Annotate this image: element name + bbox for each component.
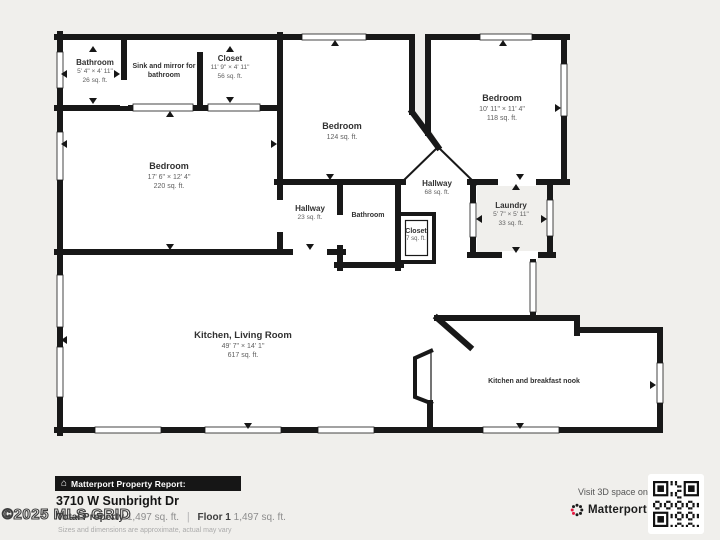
floor-value: 1,497 sq. ft. bbox=[234, 512, 286, 523]
disclaimer-text: Sizes and dimensions are approximate, ac… bbox=[58, 527, 232, 534]
room-label-bedroom-middle: Bedroom 124 sq. ft. bbox=[287, 121, 397, 142]
room-dims: 11' 9" × 4' 11" bbox=[192, 64, 268, 72]
qr-code-pattern bbox=[653, 480, 699, 528]
totals-separator: | bbox=[187, 511, 190, 523]
room-name: Closet bbox=[394, 227, 438, 236]
room-area: 7 sq. ft. bbox=[394, 236, 438, 244]
room-label-kitchen-living: Kitchen, Living Room 49' 7" × 14' 1" 617… bbox=[158, 330, 328, 361]
room-dims: 10' 11" × 11' 4" bbox=[447, 105, 557, 114]
matterport-brand: Matterport ™ bbox=[570, 503, 656, 517]
room-name: Bedroom bbox=[109, 161, 229, 173]
room-area: 68 sq. ft. bbox=[397, 189, 477, 197]
room-area: 56 sq. ft. bbox=[192, 73, 268, 81]
total-property-value: 1,497 sq. ft. bbox=[127, 512, 179, 523]
visit-3d-text: Visit 3D space on bbox=[578, 487, 648, 497]
room-dims: 17' 6" × 12' 4" bbox=[109, 173, 229, 182]
room-area: 124 sq. ft. bbox=[287, 133, 397, 142]
room-name: Closet bbox=[192, 54, 268, 64]
matterport-report-bar: ⌂ Matterport Property Report: bbox=[55, 476, 241, 491]
room-name: Hallway bbox=[397, 179, 477, 189]
room-area: 220 sq. ft. bbox=[109, 182, 229, 191]
room-label-kitchen-nook: Kitchen and breakfast nook bbox=[439, 377, 629, 386]
floorplan-page: Bathroom 5' 4" × 4' 11" 26 sq. ft. Sink … bbox=[0, 0, 720, 540]
room-name: Laundry bbox=[466, 201, 556, 211]
mls-grid-watermark: ©2025 MLS GRID bbox=[2, 506, 131, 523]
room-area: 33 sq. ft. bbox=[466, 220, 556, 228]
room-label-closet-top: Closet 11' 9" × 4' 11" 56 sq. ft. bbox=[192, 54, 268, 81]
room-label-laundry: Laundry 5' 7" × 5' 11" 33 sq. ft. bbox=[466, 201, 556, 228]
qr-code bbox=[648, 474, 704, 534]
floor-label: Floor 1 bbox=[198, 512, 231, 523]
room-label-bedroom-right: Bedroom 10' 11" × 11' 4" 118 sq. ft. bbox=[447, 93, 557, 123]
room-area: 617 sq. ft. bbox=[158, 351, 328, 360]
room-label-bedroom-left: Bedroom 17' 6" × 12' 4" 220 sq. ft. bbox=[109, 161, 229, 191]
room-label-closet-small: Closet 7 sq. ft. bbox=[394, 227, 438, 244]
house-icon: ⌂ bbox=[61, 479, 67, 489]
matterport-wordmark: Matterport bbox=[588, 504, 647, 516]
room-dims: 49' 7" × 14' 1" bbox=[158, 342, 328, 351]
room-area: 118 sq. ft. bbox=[447, 114, 557, 123]
room-label-bathroom-middle: Bathroom bbox=[333, 211, 403, 220]
room-name: Bedroom bbox=[287, 121, 397, 133]
report-bar-title: Matterport Property Report: bbox=[71, 479, 186, 489]
room-name: Bathroom bbox=[333, 211, 403, 220]
room-labels: Bathroom 5' 4" × 4' 11" 26 sq. ft. Sink … bbox=[0, 0, 720, 540]
room-dims: 5' 7" × 5' 11" bbox=[466, 211, 556, 219]
room-name: Kitchen and breakfast nook bbox=[439, 377, 629, 386]
matterport-logo-icon bbox=[570, 503, 584, 517]
room-name: Kitchen, Living Room bbox=[158, 330, 328, 342]
room-name: Bedroom bbox=[447, 93, 557, 105]
room-label-hallway-large: Hallway 68 sq. ft. bbox=[397, 179, 477, 198]
